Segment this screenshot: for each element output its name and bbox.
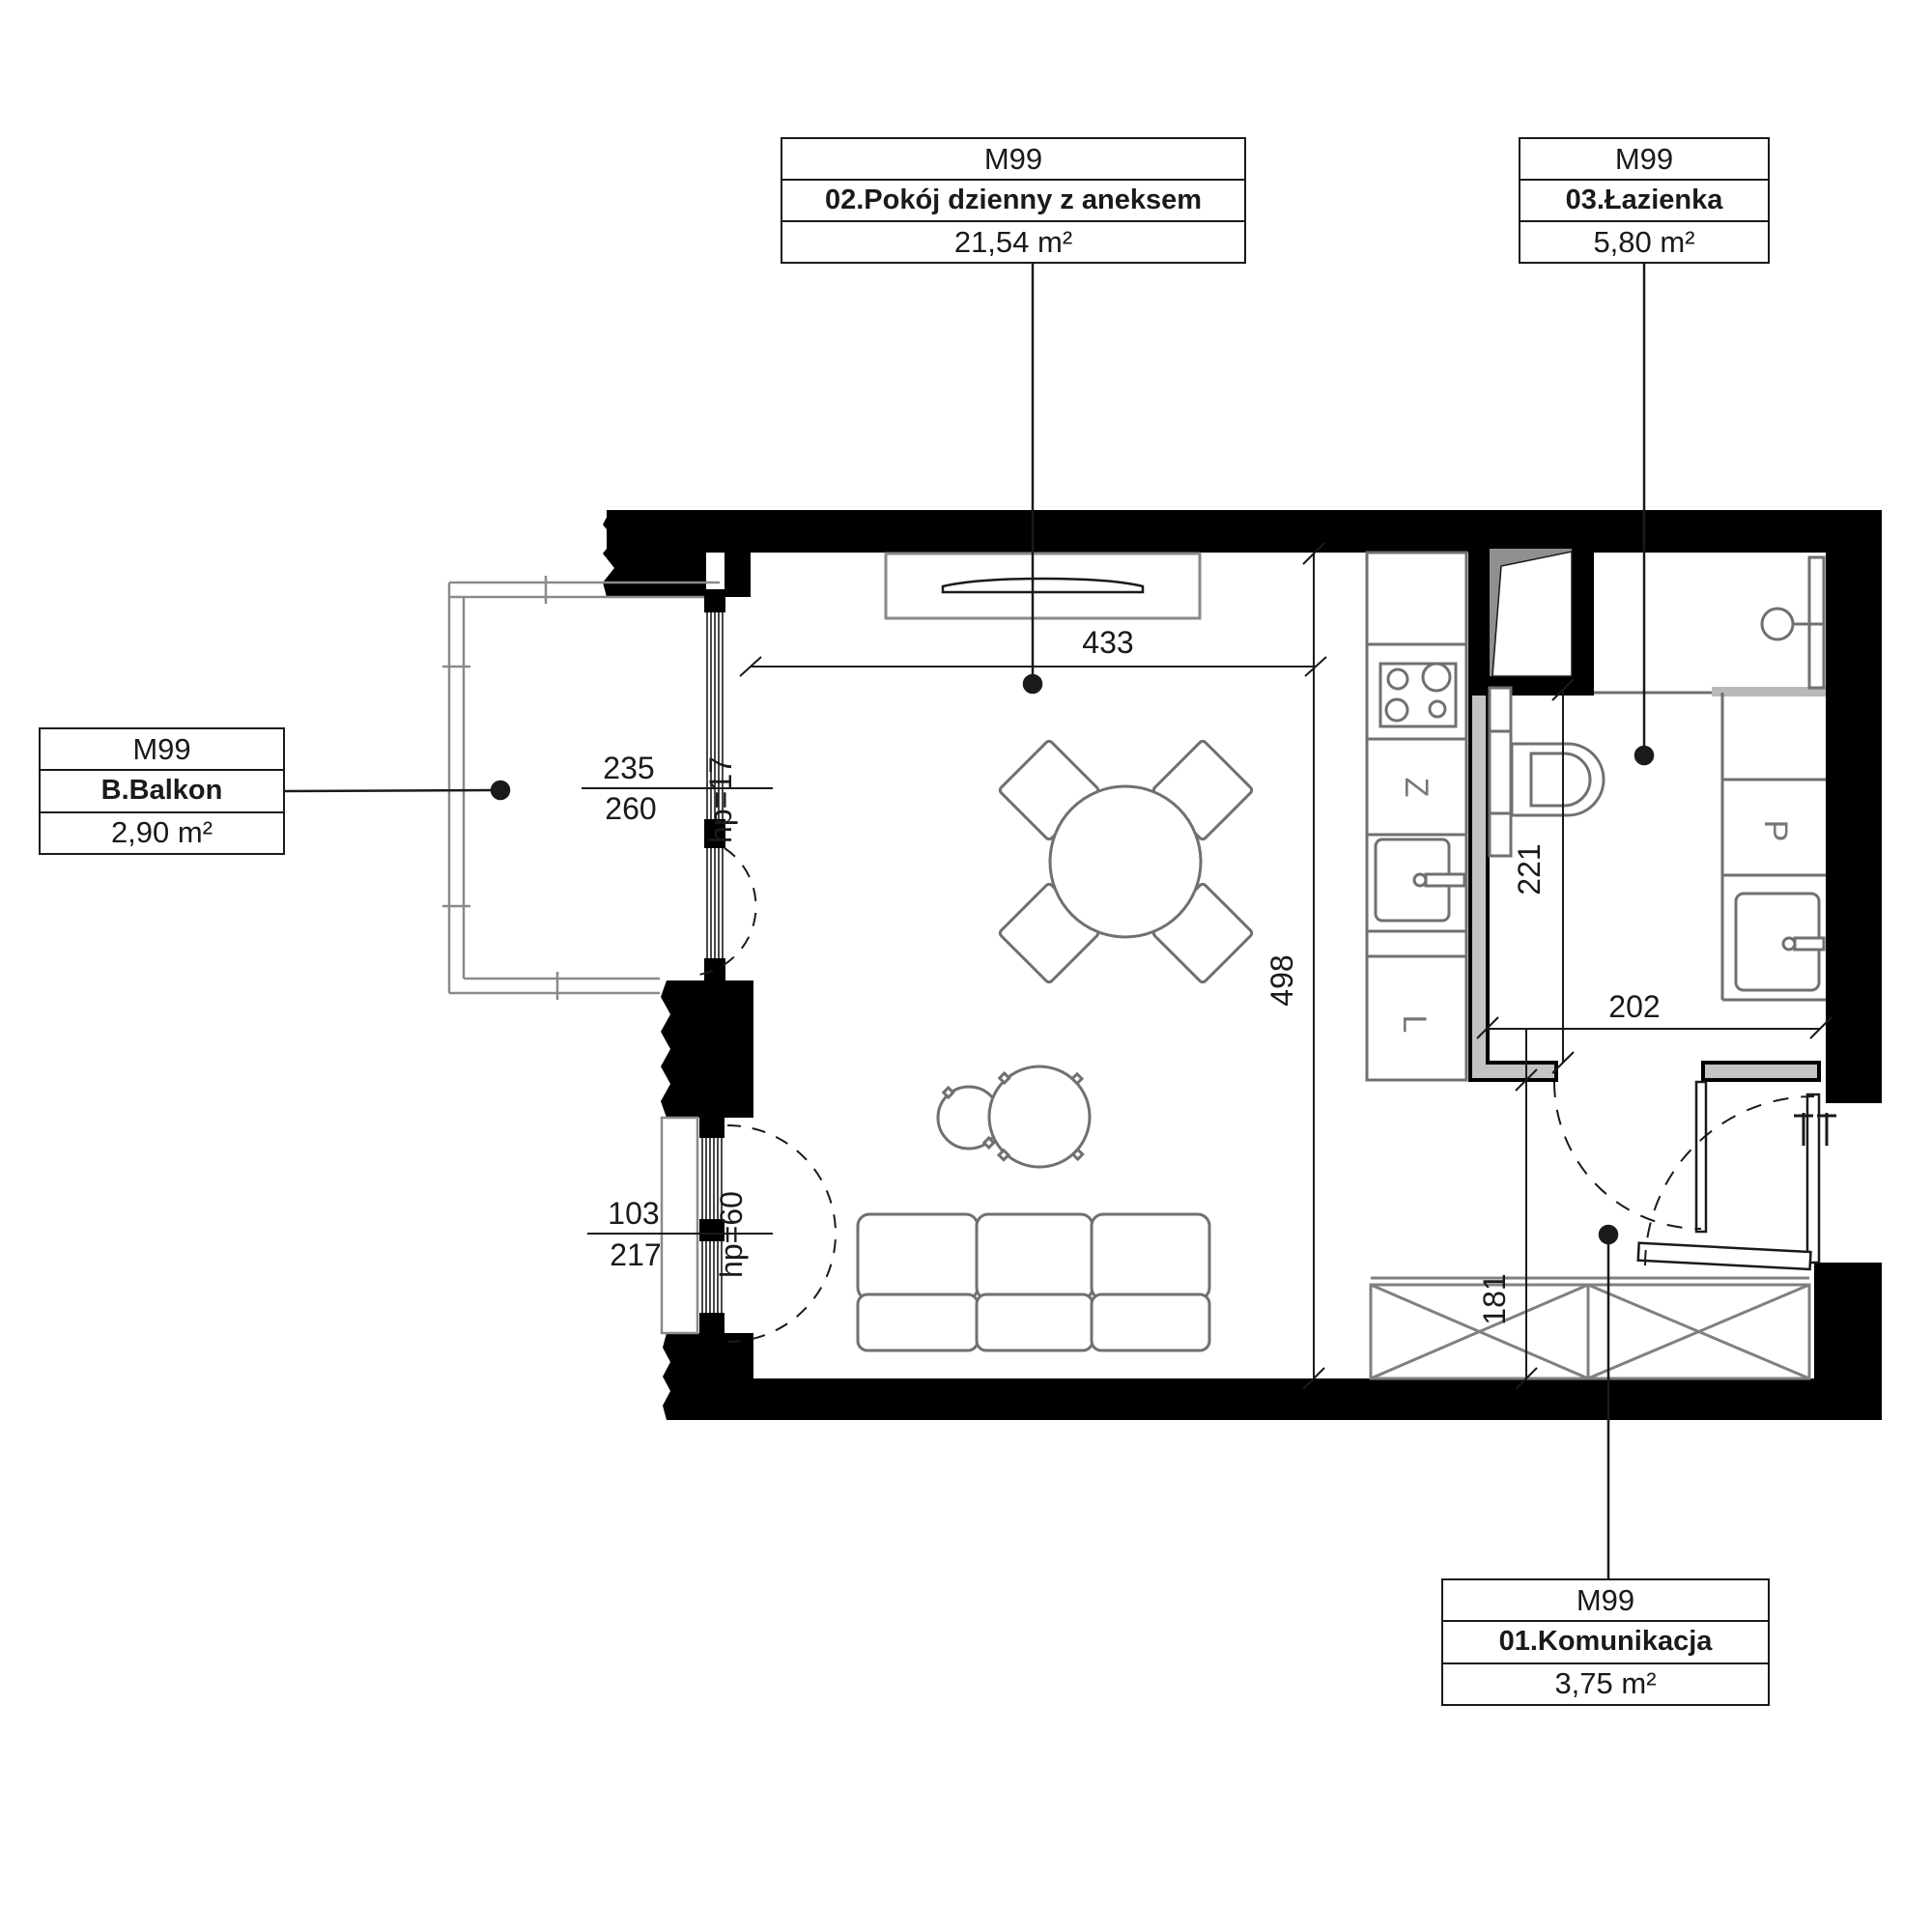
balcony-area: 2,90 m² bbox=[41, 811, 283, 853]
mullion bbox=[699, 1313, 724, 1333]
wall-left-mid-chunk bbox=[661, 980, 753, 1118]
sofa-seat-cushion bbox=[858, 1294, 978, 1350]
living-unit: M99 bbox=[782, 139, 1244, 179]
label-box-living: M99 02.Pokój dzienny z aneksem 21,54 m² bbox=[781, 137, 1246, 264]
leader-dot bbox=[1600, 1226, 1617, 1243]
toilet bbox=[1490, 688, 1604, 856]
dim-low-window-w2: 217 bbox=[610, 1237, 661, 1272]
fridge-symbol: L bbox=[1396, 1015, 1433, 1034]
wall-right-lower bbox=[1814, 1263, 1882, 1398]
sofa-seat-cushion bbox=[1092, 1294, 1209, 1350]
dim-balcony-door-w2: 260 bbox=[605, 791, 656, 826]
dim-bath-depth: 221 bbox=[1512, 843, 1547, 895]
floor-plan-page: Z L P bbox=[0, 0, 1932, 1932]
bathroom-unit: M99 bbox=[1520, 139, 1768, 179]
hallway-room-name: 01.Komunikacja bbox=[1443, 1620, 1768, 1662]
window-sill bbox=[662, 1118, 697, 1333]
living-area: 21,54 m² bbox=[782, 220, 1244, 262]
dim-room-depth: 498 bbox=[1264, 954, 1299, 1006]
dishwasher-symbol: Z bbox=[1398, 778, 1435, 798]
bathroom-door-swing-arc bbox=[1554, 1082, 1701, 1229]
wall-right-upper bbox=[1826, 510, 1882, 1103]
leader-dot bbox=[1635, 747, 1653, 764]
entrance-door-leaf bbox=[1638, 1243, 1811, 1269]
bathroom-room-name: 03.Łazienka bbox=[1520, 179, 1768, 220]
mullion bbox=[704, 589, 725, 612]
bathroom-area: 5,80 m² bbox=[1520, 220, 1768, 262]
living-room-name: 02.Pokój dzienny z aneksem bbox=[782, 179, 1244, 220]
sofa-back-cushion bbox=[977, 1214, 1093, 1299]
faucet bbox=[1795, 938, 1824, 950]
washer-symbol: P bbox=[1757, 820, 1794, 842]
kitchen bbox=[1367, 553, 1466, 1080]
dining-set bbox=[999, 740, 1254, 984]
hallway-area: 3,75 m² bbox=[1443, 1662, 1768, 1704]
dim-hp-balcony: hp=17 bbox=[703, 756, 738, 843]
sofa-seat-cushion bbox=[977, 1294, 1093, 1350]
sofa bbox=[858, 1214, 1209, 1350]
dim-hall-depth: 181 bbox=[1477, 1273, 1512, 1324]
mullion bbox=[704, 958, 725, 980]
shaft-symbol bbox=[1492, 552, 1572, 676]
leader-dot bbox=[1024, 675, 1041, 693]
dim-bath-width: 202 bbox=[1608, 989, 1660, 1024]
shower-head-icon bbox=[1762, 609, 1793, 639]
entrance-door-frame bbox=[1807, 1094, 1819, 1263]
sideboard-detail bbox=[943, 579, 1143, 592]
balcony-room-name: B.Balkon bbox=[41, 769, 283, 810]
sofa-back-cushion bbox=[858, 1214, 978, 1299]
partition-bath-door-cap bbox=[1703, 1063, 1819, 1080]
wardrobe bbox=[1371, 1278, 1809, 1378]
coffee-table-large bbox=[989, 1066, 1090, 1167]
dim-top-window: 433 bbox=[1082, 625, 1133, 660]
bathroom-door bbox=[1554, 1082, 1706, 1232]
wardrobe-body bbox=[1371, 1285, 1809, 1378]
leader-dot bbox=[492, 781, 509, 799]
balcony-unit: M99 bbox=[41, 729, 283, 769]
kitchen-counter bbox=[1367, 553, 1466, 1080]
faucet bbox=[1426, 874, 1464, 886]
dim-hp-low: hp=60 bbox=[714, 1191, 749, 1278]
sofa-back-cushion bbox=[1092, 1214, 1209, 1299]
entrance-door bbox=[1638, 1094, 1836, 1269]
wall-top-left-chunk bbox=[603, 510, 706, 597]
installation-shaft bbox=[1468, 541, 1594, 696]
window-swing-arc bbox=[692, 848, 756, 976]
hob bbox=[1380, 664, 1456, 726]
mullion bbox=[699, 1118, 724, 1138]
dim-low-window-w: 103 bbox=[608, 1196, 659, 1231]
dining-table bbox=[1050, 786, 1201, 937]
sideboard bbox=[886, 554, 1200, 618]
entrance-door-swing-arc bbox=[1645, 1096, 1814, 1265]
wall-bottom bbox=[663, 1333, 1882, 1420]
washbasin bbox=[1736, 894, 1824, 990]
wall-balcony-jamb bbox=[724, 541, 751, 597]
dim-balcony-door-w: 235 bbox=[603, 751, 654, 785]
low-window bbox=[662, 1118, 836, 1342]
bathroom-door-leaf bbox=[1696, 1082, 1706, 1232]
wall-top bbox=[607, 510, 1882, 553]
hallway-unit: M99 bbox=[1443, 1580, 1768, 1620]
label-box-hallway: M99 01.Komunikacja 3,75 m² bbox=[1441, 1578, 1770, 1706]
label-box-balcony: M99 B.Balkon 2,90 m² bbox=[39, 727, 285, 855]
label-box-bathroom: M99 03.Łazienka 5,80 m² bbox=[1519, 137, 1770, 264]
coffee-tables bbox=[938, 1066, 1090, 1167]
